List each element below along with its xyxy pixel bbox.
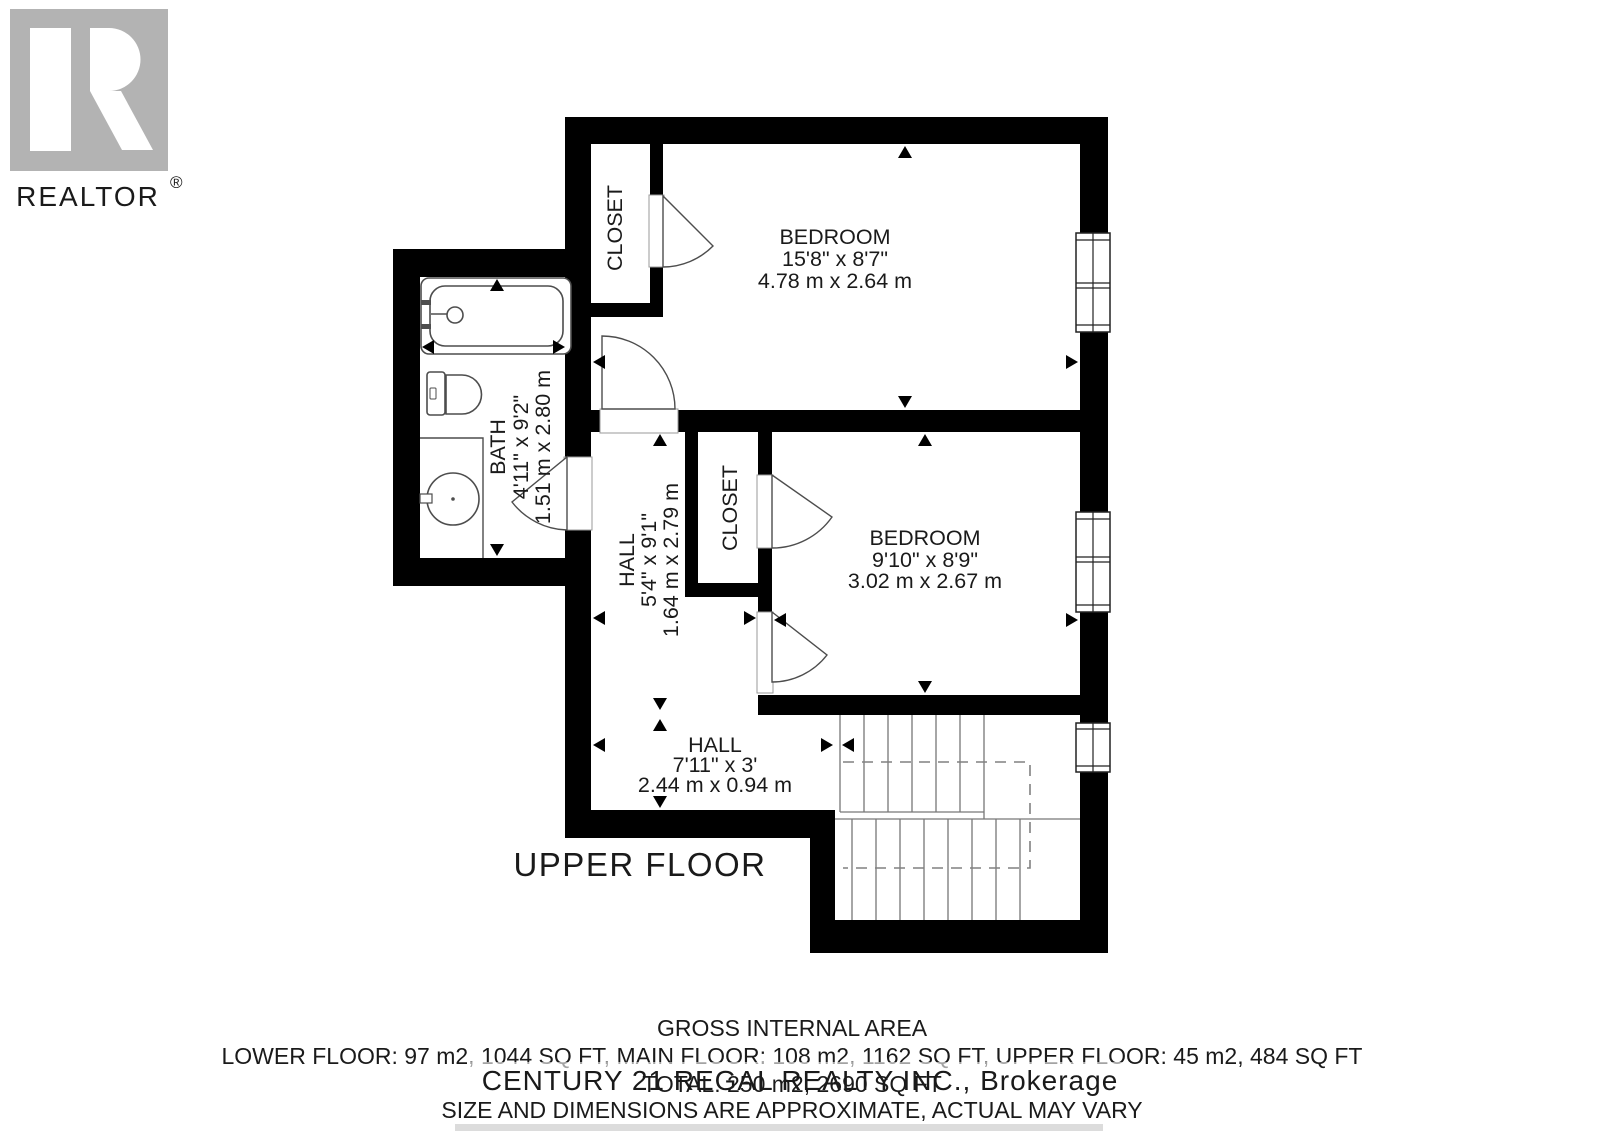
hall-upper-imperial: 5'4" x 9'1" (637, 513, 661, 607)
walls (393, 117, 1108, 953)
registered-mark: ® (170, 173, 183, 192)
bath-name: BATH (486, 419, 510, 475)
closet2-label: CLOSET (718, 465, 742, 551)
closet1-door-opening (649, 195, 664, 267)
sink-icon (420, 438, 483, 558)
bath-imperial: 4'11" x 9'2" (509, 395, 533, 499)
bedroom2-door-opening (757, 612, 773, 693)
bath-metric: 1.51 m x 2.80 m (531, 370, 555, 524)
hall-upper-metric: 1.64 m x 2.79 m (659, 483, 683, 637)
room-hall-lower: HALL 7'11" x 3' 2.44 m x 0.94 m (638, 733, 792, 797)
realtor-wordmark: REALTOR (16, 181, 160, 212)
bedroom2-window-icon (1076, 512, 1110, 612)
bedroom1-door-arc-icon (602, 336, 675, 409)
closet2-door-opening (757, 475, 773, 548)
footer-disclaimer: SIZE AND DIMENSIONS ARE APPROXIMATE, ACT… (441, 1097, 1142, 1123)
bedroom1-imperial: 15'8" x 8'7" (782, 247, 888, 271)
bedroom2-metric: 3.02 m x 2.67 m (848, 569, 1002, 593)
floorplan-page: REALTOR ® (0, 0, 1600, 1131)
watermark-bottom-strip (455, 1124, 1103, 1131)
bedroom1-name: BEDROOM (779, 225, 890, 249)
room-bedroom-2: BEDROOM 9'10" x 8'9" 3.02 m x 2.67 m (848, 526, 1002, 593)
footer-title: GROSS INTERNAL AREA (657, 1015, 928, 1041)
stairs-icon (835, 715, 1080, 920)
footer-total-line: TOTAL: 250 m2, 2690 SQ FT (642, 1071, 942, 1097)
room-bedroom-1: BEDROOM 15'8" x 8'7" 4.78 m x 2.64 m (758, 225, 912, 293)
bedroom1-window-icon (1076, 233, 1110, 332)
bedroom1-metric: 4.78 m x 2.64 m (758, 269, 912, 293)
closet1-label: CLOSET (603, 185, 627, 271)
bedroom2-name: BEDROOM (869, 526, 980, 550)
bedroom1-door-opening (600, 409, 678, 433)
closet2-door-arc-icon (772, 475, 832, 548)
room-hall-upper: HALL 5'4" x 9'1" 1.64 m x 2.79 m (615, 483, 683, 637)
toilet-icon (427, 372, 482, 415)
realtor-logo: REALTOR ® (10, 9, 183, 212)
stairwell-window-icon (1076, 723, 1110, 772)
closet1-door-arc-icon (663, 196, 713, 267)
hall-lower-metric: 2.44 m x 0.94 m (638, 773, 792, 797)
hall-upper-name: HALL (615, 533, 639, 587)
footer: GROSS INTERNAL AREA LOWER FLOOR: 97 m2, … (222, 1015, 1363, 1131)
bath-door-opening (564, 457, 592, 530)
floor-title: UPPER FLOOR (513, 846, 766, 883)
